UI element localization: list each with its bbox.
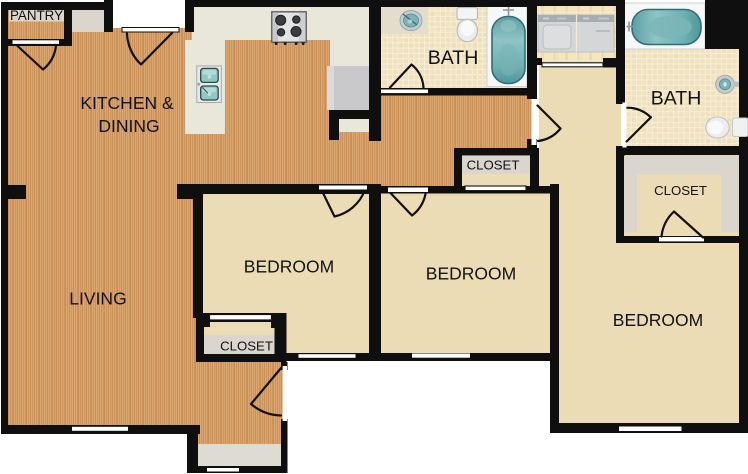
svg-text:BEDROOM: BEDROOM	[613, 310, 703, 330]
svg-text:LIVING: LIVING	[69, 289, 126, 309]
svg-text:KITCHEN &: KITCHEN &	[80, 93, 174, 113]
svg-text:CLOSET: CLOSET	[467, 157, 520, 172]
svg-text:CLOSET: CLOSET	[220, 339, 273, 354]
svg-text:CLOSET: CLOSET	[654, 183, 707, 198]
svg-text:DINING: DINING	[98, 116, 159, 136]
svg-text:BEDROOM: BEDROOM	[244, 257, 334, 277]
svg-text:BATH: BATH	[651, 88, 702, 110]
svg-text:BEDROOM: BEDROOM	[426, 264, 516, 284]
svg-text:PANTRY: PANTRY	[10, 8, 63, 23]
svg-text:BATH: BATH	[428, 47, 479, 69]
